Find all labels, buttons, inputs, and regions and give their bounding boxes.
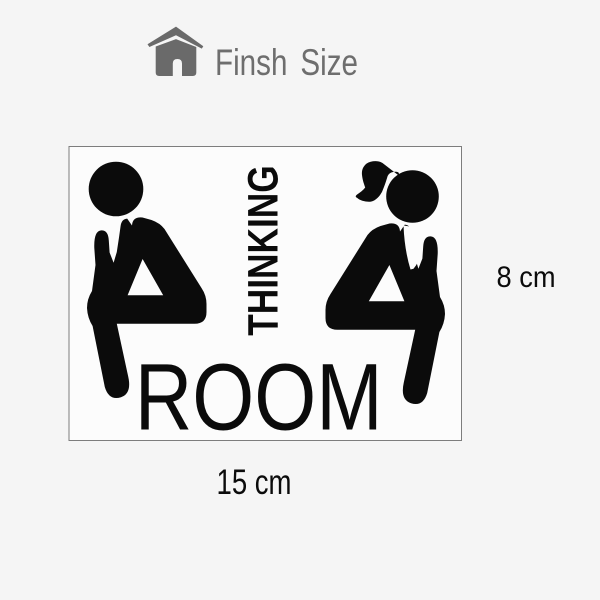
svg-text:ROOM: ROOM	[135, 345, 383, 451]
svg-text:8 cm: 8 cm	[497, 261, 556, 294]
svg-text:THINKING: THINKING	[240, 165, 288, 336]
svg-text:15 cm: 15 cm	[217, 463, 292, 502]
svg-text:Finsh Size: Finsh Size	[215, 41, 358, 83]
